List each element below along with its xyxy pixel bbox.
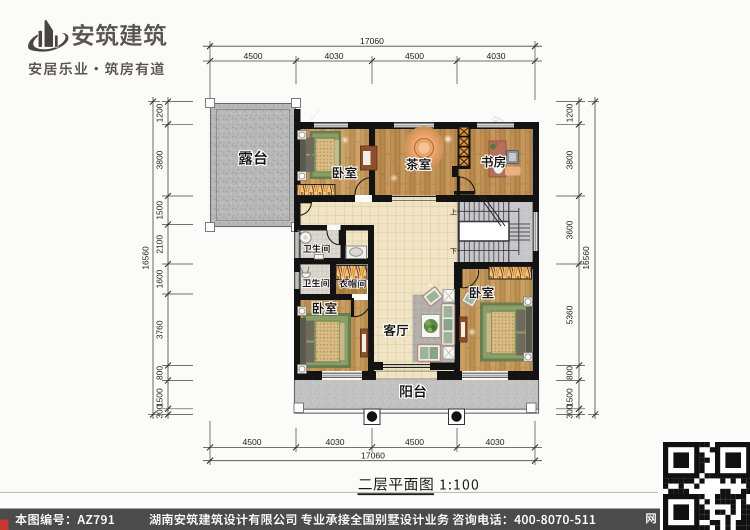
svg-text:1200: 1200 bbox=[155, 103, 165, 122]
svg-text:4030: 4030 bbox=[325, 437, 344, 447]
svg-text:3760: 3760 bbox=[155, 320, 165, 339]
svg-text:1500: 1500 bbox=[155, 201, 165, 220]
svg-text:16560: 16560 bbox=[581, 246, 591, 270]
svg-text:17060: 17060 bbox=[360, 36, 384, 46]
svg-text:卫生间: 卫生间 bbox=[302, 275, 330, 289]
svg-text:300: 300 bbox=[565, 404, 575, 418]
svg-text:800: 800 bbox=[155, 366, 165, 380]
svg-text:茶室: 茶室 bbox=[406, 154, 432, 173]
svg-text:800: 800 bbox=[565, 366, 575, 380]
svg-text:4500: 4500 bbox=[243, 51, 262, 61]
svg-text:1500: 1500 bbox=[565, 388, 575, 407]
svg-text:3800: 3800 bbox=[155, 150, 165, 169]
svg-text:网: 网 bbox=[645, 511, 657, 527]
svg-text:衣帽间: 衣帽间 bbox=[339, 276, 367, 290]
svg-text:卫生间: 卫生间 bbox=[303, 241, 331, 255]
svg-text:4030: 4030 bbox=[485, 437, 504, 447]
svg-text:4500: 4500 bbox=[405, 51, 424, 61]
svg-text:17060: 17060 bbox=[361, 450, 385, 460]
svg-text:书房: 书房 bbox=[481, 152, 507, 171]
svg-text:3600: 3600 bbox=[565, 220, 575, 239]
svg-text:安筑建筑: 安筑建筑 bbox=[71, 16, 167, 51]
svg-text:卧室: 卧室 bbox=[469, 283, 495, 302]
svg-text:上: 上 bbox=[450, 207, 457, 217]
svg-text:5360: 5360 bbox=[565, 305, 575, 324]
svg-text:露台: 露台 bbox=[238, 148, 268, 169]
svg-text:4500: 4500 bbox=[405, 437, 424, 447]
svg-text:1200: 1200 bbox=[565, 103, 575, 122]
svg-text:客厅: 客厅 bbox=[383, 320, 409, 339]
svg-text:2100: 2100 bbox=[155, 235, 165, 254]
svg-text:1500: 1500 bbox=[155, 388, 165, 407]
svg-text:4500: 4500 bbox=[242, 437, 261, 447]
svg-text:3800: 3800 bbox=[565, 150, 575, 169]
svg-text:二层平面图: 二层平面图 bbox=[358, 474, 435, 495]
svg-text:4030: 4030 bbox=[486, 51, 505, 61]
svg-text:下: 下 bbox=[450, 247, 457, 257]
svg-text:300: 300 bbox=[155, 404, 165, 418]
svg-text:4030: 4030 bbox=[324, 51, 343, 61]
svg-text:1:100: 1:100 bbox=[439, 475, 480, 495]
svg-text:卧室: 卧室 bbox=[312, 298, 338, 317]
svg-text:本图编号：AZ791: 本图编号：AZ791 bbox=[15, 510, 115, 528]
svg-text:湖南安筑建筑设计有限公司 专业承接全国别墅设计业务 咨询: 湖南安筑建筑设计有限公司 专业承接全国别墅设计业务 咨询电话：400-8070-… bbox=[149, 510, 596, 528]
svg-text:16560: 16560 bbox=[141, 246, 151, 270]
svg-text:卧室: 卧室 bbox=[332, 163, 358, 182]
svg-text:1600: 1600 bbox=[155, 269, 165, 288]
svg-text:阳台: 阳台 bbox=[399, 382, 427, 402]
svg-text:安居乐业·筑房有道: 安居乐业·筑房有道 bbox=[28, 59, 166, 79]
